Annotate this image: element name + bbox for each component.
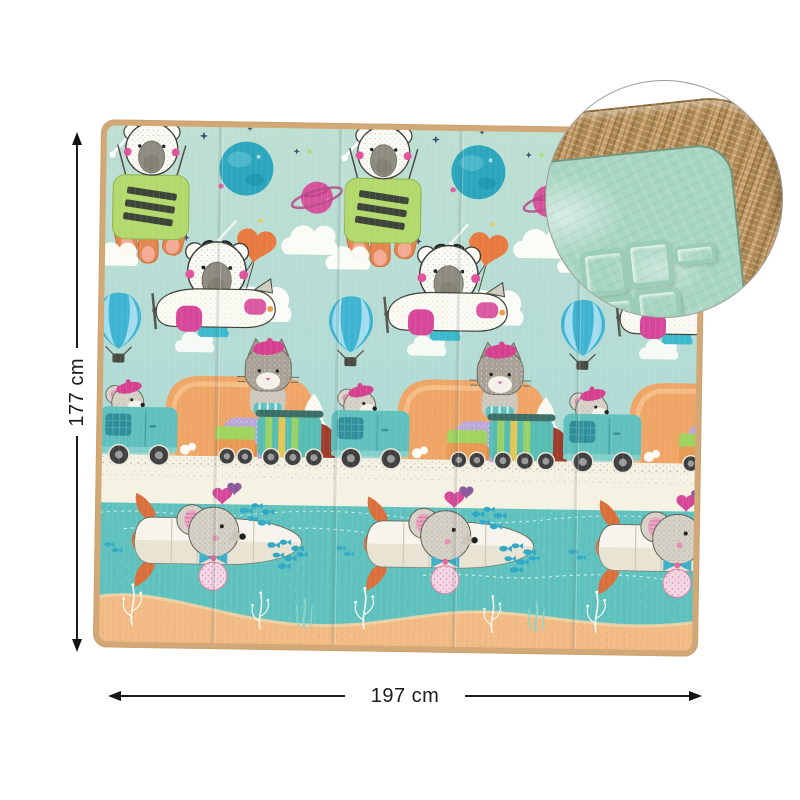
width-dimension-label: 197 cm xyxy=(345,685,466,708)
embossed-square xyxy=(579,247,630,298)
embossed-foam-surface xyxy=(545,142,755,318)
zoom-detail-circle xyxy=(545,80,783,318)
dimension-line xyxy=(76,145,78,348)
embossed-square xyxy=(624,239,675,290)
embossed-square xyxy=(633,286,684,318)
product-image: 177 cm 197 cm xyxy=(0,0,800,800)
height-dimension-annotation: 177 cm xyxy=(66,132,88,652)
width-dimension-annotation: 197 cm xyxy=(108,688,702,704)
height-dimension-label: 177 cm xyxy=(66,358,89,427)
dimension-line xyxy=(121,695,345,697)
embossed-square xyxy=(588,295,639,318)
arrow-right-icon xyxy=(689,691,702,701)
dimension-line xyxy=(76,436,78,639)
arrow-up-icon xyxy=(72,132,82,145)
dimension-line xyxy=(465,695,689,697)
mat-corner-closeup xyxy=(545,80,783,318)
arrow-left-icon xyxy=(108,691,121,701)
arrow-down-icon xyxy=(72,639,82,652)
